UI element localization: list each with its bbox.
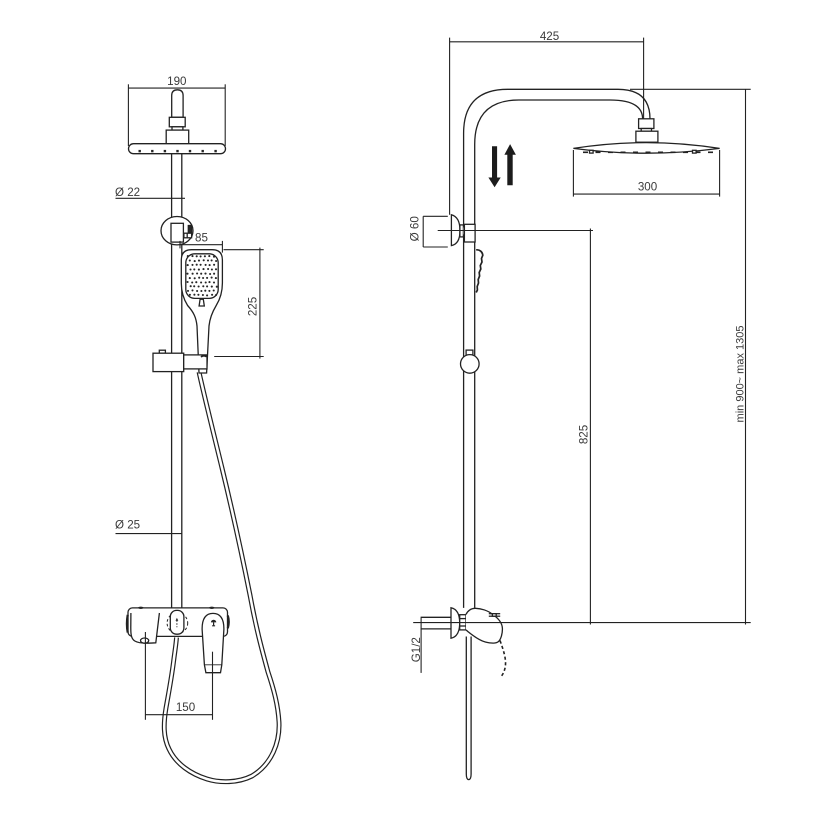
svg-text:min 900~ max 1305: min 900~ max 1305 (734, 326, 746, 423)
svg-text:85: 85 (195, 232, 208, 245)
svg-text:300: 300 (638, 180, 657, 193)
svg-text:G1/2: G1/2 (410, 637, 423, 662)
svg-text:225: 225 (246, 297, 259, 316)
svg-text:825: 825 (578, 425, 591, 444)
svg-text:425: 425 (540, 30, 559, 43)
svg-text:150: 150 (176, 701, 195, 714)
svg-text:Ø 25: Ø 25 (115, 518, 140, 531)
svg-text:190: 190 (167, 75, 186, 88)
svg-text:Ø 22: Ø 22 (115, 186, 140, 199)
svg-text:Ø 60: Ø 60 (408, 216, 421, 241)
